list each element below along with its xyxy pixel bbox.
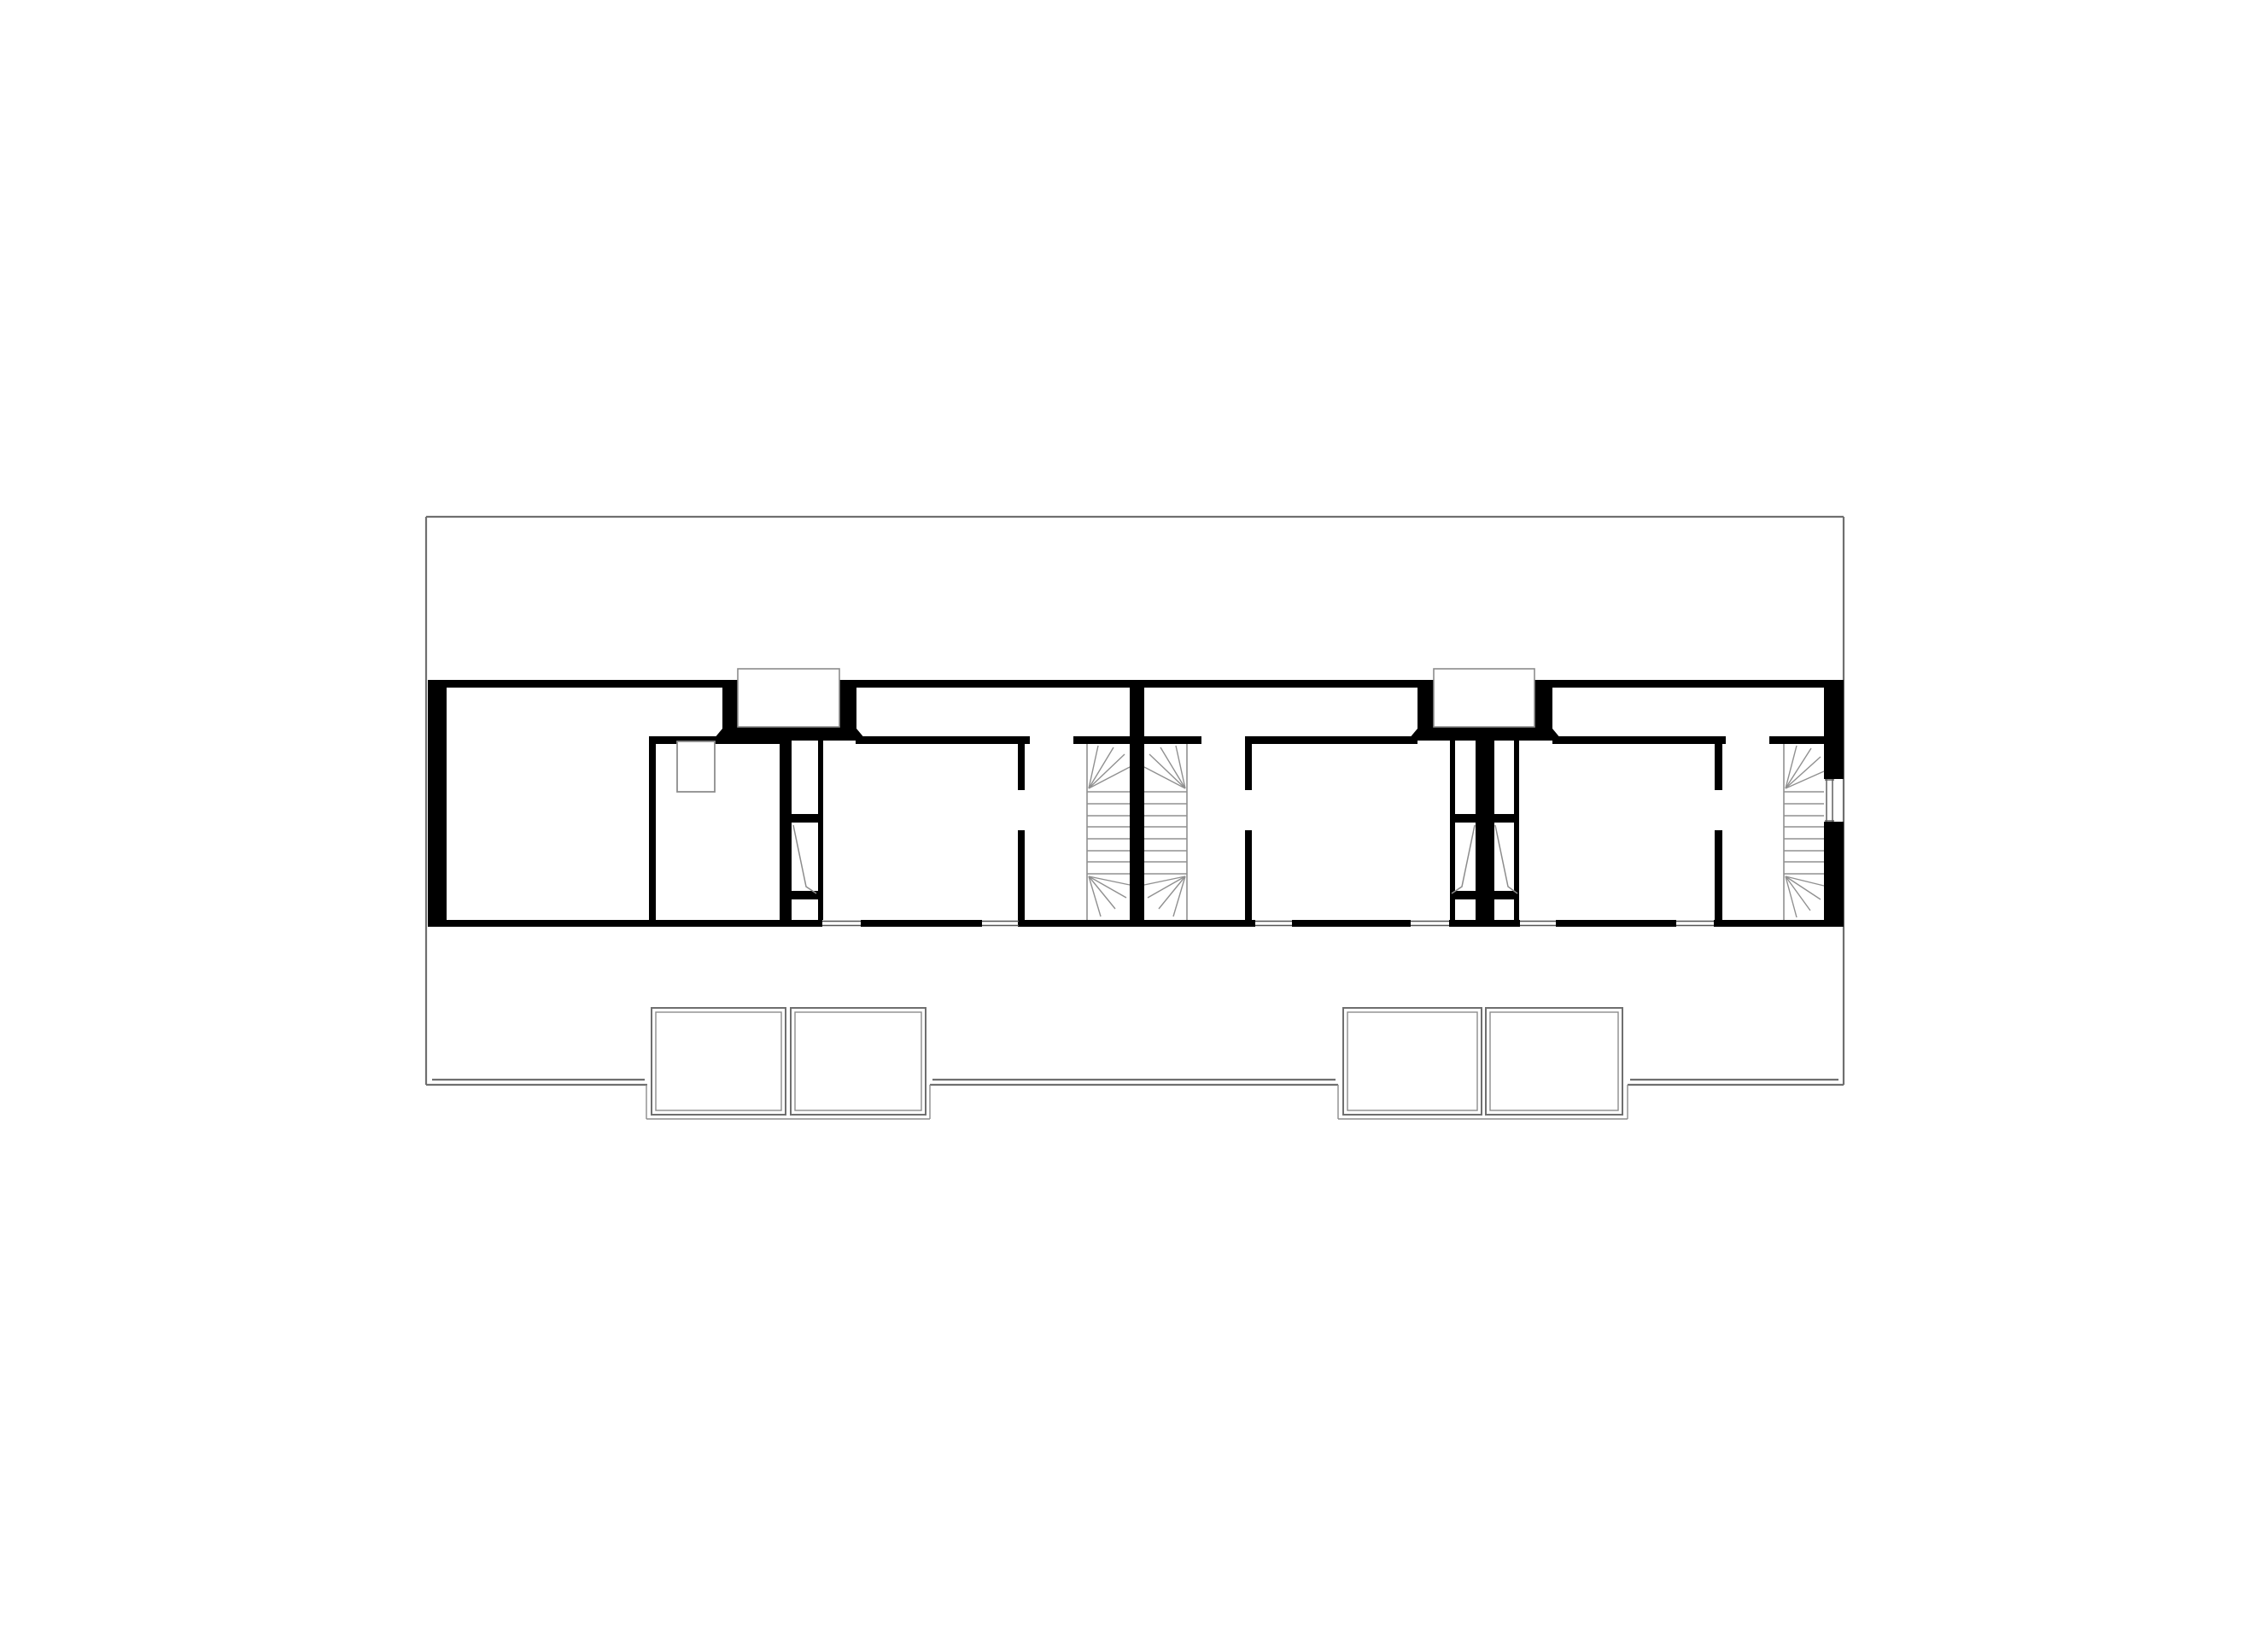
rooflight-room-west	[677, 741, 715, 792]
hall-partition-a-lower	[1018, 830, 1025, 927]
stairwell-wall-c	[1769, 736, 1824, 744]
outer-wall-right-lower	[1824, 822, 1844, 927]
knee-wall-unit-c	[1552, 736, 1726, 744]
rooflight	[677, 741, 715, 792]
chimney-west	[738, 669, 839, 727]
hall-partition-b-lower	[1245, 830, 1252, 927]
dormer-d-outer	[1486, 1008, 1622, 1115]
facade-wall-bottom-7	[1714, 920, 1844, 927]
party-wall-bc	[1476, 730, 1494, 927]
room-partition-west	[649, 736, 656, 927]
shaft-divider-b1	[1450, 814, 1476, 823]
floor-plan-page	[0, 0, 2268, 1634]
shaft-divider-a1	[792, 814, 823, 823]
hall-partition-c-lower	[1715, 830, 1722, 927]
knee-wall-unit-b	[1245, 736, 1417, 744]
hall-partition-a-upper	[1018, 744, 1025, 790]
shaft-divider-c1	[1494, 814, 1519, 823]
dormer-b-outer	[791, 1008, 926, 1115]
hall-partition-c-upper	[1715, 744, 1722, 790]
hall-partition-b-upper	[1245, 744, 1252, 790]
party-wall-stair-spine	[1130, 680, 1144, 927]
floor-plan-svg	[0, 0, 2268, 1634]
facade-wall-bottom-2	[861, 920, 982, 927]
dormer-c-outer	[1343, 1008, 1482, 1115]
shaft-divider-a2	[792, 891, 823, 899]
outer-wall-left	[428, 680, 447, 927]
facade-wall-bottom-6	[1556, 920, 1676, 927]
facade-wall-top-east	[1552, 680, 1844, 688]
facade-wall-bottom-4	[1292, 920, 1411, 927]
chimney-center	[1434, 669, 1534, 727]
facade-wall-top-west	[428, 680, 722, 688]
knee-wall-unit-a	[856, 736, 1030, 744]
facade-wall-bottom-1	[428, 920, 822, 927]
chimney-wall-unit-a	[780, 736, 792, 927]
outer-wall-right-upper	[1824, 680, 1844, 779]
dormer-a-outer	[652, 1008, 786, 1115]
